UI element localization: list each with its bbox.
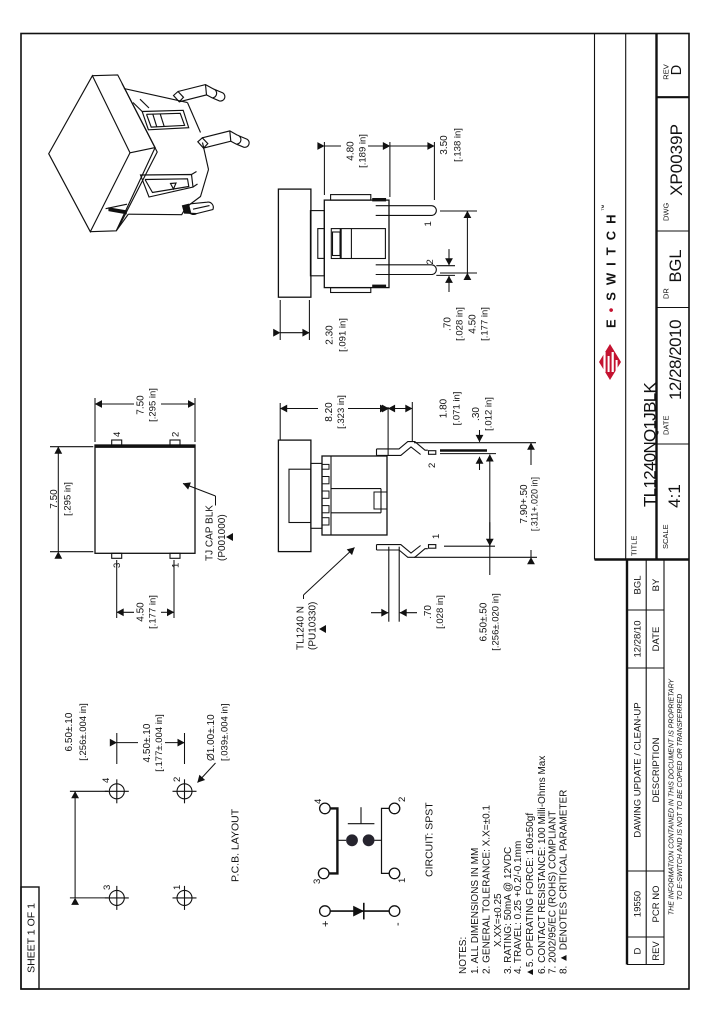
svg-text:6.50±.10: 6.50±.10 [64,712,75,751]
svg-text:19550: 19550 [633,891,644,917]
svg-text:[.256±.004 in]: [.256±.004 in] [78,703,89,761]
svg-text:1.80: 1.80 [439,398,450,418]
svg-text:(PU10330): (PU10330) [308,602,319,650]
svg-text:REV: REV [651,941,662,961]
svg-text:[.295 in]: [.295 in] [148,388,159,422]
svg-text:3: 3 [102,885,113,890]
svg-text:.70: .70 [423,605,434,619]
svg-text:TL1240 N: TL1240 N [296,606,307,650]
svg-text:NOTES:: NOTES: [458,937,469,974]
svg-text:SHEET 1 OF 1: SHEET 1 OF 1 [26,903,38,973]
svg-text:4:1: 4:1 [665,484,684,508]
svg-text:TO E-SWITCH AND IS NOT TO BE C: TO E-SWITCH AND IS NOT TO BE COPIED OR T… [677,694,684,900]
svg-text:[.256±.020 in]: [.256±.020 in] [491,593,502,651]
svg-text:[.311+.020 in]: [.311+.020 in] [530,477,540,531]
svg-text:Ø1.00±.10: Ø1.00±.10 [206,714,217,761]
svg-text:[.028 in]: [.028 in] [455,307,466,341]
svg-text:PCR NO: PCR NO [651,886,662,923]
svg-text:[.138 in]: [.138 in] [453,128,464,162]
svg-text:7.50: 7.50 [49,489,60,509]
svg-text:[.028 in]: [.028 in] [435,595,446,629]
svg-text:4: 4 [112,432,123,437]
svg-text:1: 1 [431,534,442,539]
svg-text:DAWING UPDATE / CLEAN-UP: DAWING UPDATE / CLEAN-UP [633,702,644,837]
svg-text:4.50: 4.50 [136,602,147,622]
svg-text:(P001000): (P001000) [217,514,228,561]
svg-text:D: D [633,947,644,954]
svg-text:4. TRAVEL: 0.25 +0.2/-0.1mm: 4. TRAVEL: 0.25 +0.2/-0.1mm [513,841,524,974]
svg-text:6. CONTACT RESISTANCE: 100 Mil: 6. CONTACT RESISTANCE: 100 Milli-Ohms Ma… [537,756,548,974]
svg-text:E•SWITCH: E•SWITCH [604,207,619,328]
svg-text:[.295 in]: [.295 in] [63,482,74,516]
svg-text:[.177 in]: [.177 in] [480,307,491,341]
svg-text:2: 2 [171,432,182,437]
svg-text:12/28/10: 12/28/10 [633,621,644,658]
svg-text:DR: DR [662,288,671,299]
svg-text:2: 2 [397,797,408,802]
svg-text:DATE: DATE [651,627,662,652]
svg-text:▲5. OPERATING FORCE: 160±50gf: ▲5. OPERATING FORCE: 160±50gf [525,813,536,977]
svg-text:-: - [392,922,404,926]
svg-text:[.189 in]: [.189 in] [358,134,369,168]
svg-text:SCALE: SCALE [661,524,670,549]
svg-text:8.20: 8.20 [324,402,335,422]
svg-text:4.50±.10: 4.50±.10 [142,723,153,762]
svg-text:2: 2 [172,777,183,782]
svg-text:.70: .70 [443,317,454,331]
svg-text:4: 4 [313,799,324,804]
svg-text:[.071 in]: [.071 in] [452,392,463,426]
svg-text:[.039±.004 in]: [.039±.004 in] [220,703,231,761]
svg-text:THE INFORMATION CONTAINED IN T: THE INFORMATION CONTAINED IN THIS DOCUME… [669,678,676,916]
svg-text:1: 1 [423,221,434,226]
svg-text:4.50: 4.50 [468,314,479,334]
svg-text:7.90+.50: 7.90+.50 [519,484,530,524]
svg-text:3: 3 [112,563,123,568]
svg-text:4.80: 4.80 [346,141,357,161]
svg-text:2: 2 [425,259,436,264]
svg-text:1. ALL DIMENSIONS IN MM: 1. ALL DIMENSIONS IN MM [470,848,481,974]
svg-text:DESCRIPTION: DESCRIPTION [651,737,662,802]
svg-text:2: 2 [427,463,438,468]
svg-text:BGL: BGL [667,249,685,282]
svg-text:7.50: 7.50 [136,395,147,415]
svg-text:.30: .30 [471,407,482,421]
svg-text:TJ CAP BLK: TJ CAP BLK [205,505,216,561]
svg-text:2. GENERAL TOLERANCE: X.X=±0.1: 2. GENERAL TOLERANCE: X.X=±0.1 [481,805,492,974]
svg-text:[.323 in]: [.323 in] [336,395,347,429]
svg-text:7. 2002/95/EC (ROHS) COMPLIANT: 7. 2002/95/EC (ROHS) COMPLIANT [548,811,559,974]
svg-text:DATE: DATE [662,416,671,435]
svg-text:D: D [669,65,685,75]
svg-text:3.50: 3.50 [439,135,450,155]
svg-text:BGL: BGL [633,575,644,594]
svg-text:1: 1 [172,885,183,890]
svg-text:[.012 in]: [.012 in] [484,397,495,431]
svg-text:3: 3 [312,879,323,884]
svg-text:[.091 in]: [.091 in] [338,318,349,352]
svg-text:1: 1 [171,563,182,568]
svg-text:6.50±.50: 6.50±.50 [479,602,490,641]
svg-text:[.177±.004 in]: [.177±.004 in] [154,714,165,772]
svg-text:[.177 in]: [.177 in] [148,595,159,629]
svg-text:TL1240NQ1JBLK: TL1240NQ1JBLK [641,381,660,507]
svg-text:P.C.B. LAYOUT: P.C.B. LAYOUT [230,808,242,882]
svg-text:4: 4 [101,778,112,783]
svg-text:XP0039P: XP0039P [667,124,686,196]
svg-text:8. ▲ DENOTES CRITICAL PARAMETE: 8. ▲ DENOTES CRITICAL PARAMETER [559,790,570,974]
svg-text:BY: BY [651,578,662,591]
svg-text:2.30: 2.30 [325,325,336,345]
svg-text:TITLE: TITLE [630,536,639,556]
svg-text:DWG: DWG [662,203,671,221]
svg-text:12/28/2010: 12/28/2010 [666,320,685,400]
svg-text:1: 1 [397,878,408,883]
svg-text:+: + [320,921,332,927]
svg-text:CIRCUIT: SPST: CIRCUIT: SPST [424,802,436,877]
svg-text:™: ™ [601,205,608,212]
